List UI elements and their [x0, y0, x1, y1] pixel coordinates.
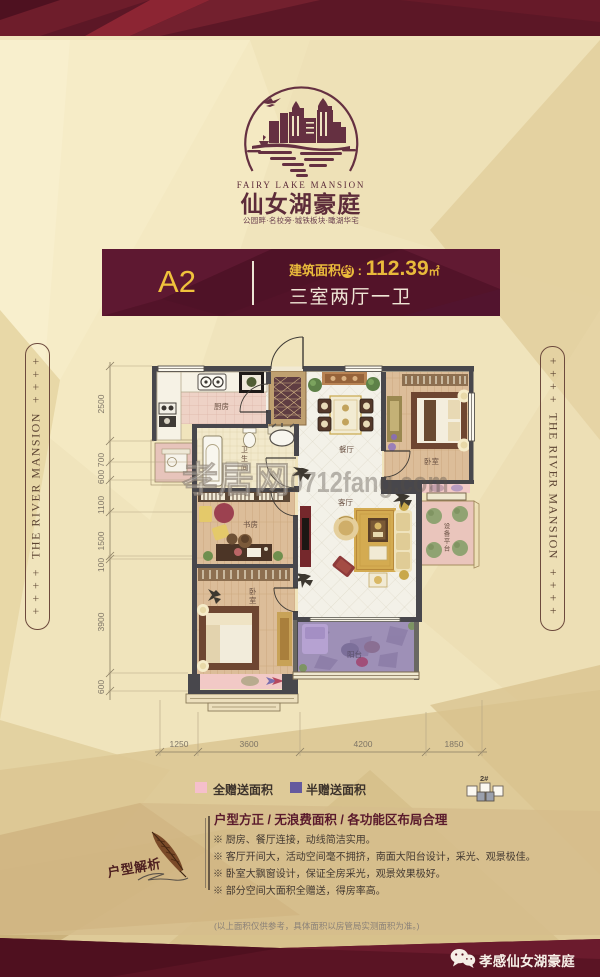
svg-text:FAIRY LAKE MANSION: FAIRY LAKE MANSION: [237, 180, 365, 190]
svg-text:平: 平: [444, 537, 451, 545]
svg-text:3900: 3900: [96, 612, 106, 631]
svg-text:1500: 1500: [96, 531, 106, 550]
svg-text:仙女湖豪庭: 仙女湖豪庭: [241, 191, 362, 217]
svg-text:700: 700: [96, 453, 106, 467]
svg-text:1850: 1850: [445, 739, 464, 749]
svg-text:2500: 2500: [96, 394, 106, 413]
svg-text:厨房: 厨房: [214, 401, 229, 411]
svg-text:100: 100: [96, 558, 106, 572]
svg-text:公园畔·名校旁·城铁板块·瞰湖华宅: 公园畔·名校旁·城铁板块·瞰湖华宅: [243, 215, 359, 225]
svg-text:1100: 1100: [96, 496, 106, 515]
svg-text:书房: 书房: [243, 519, 258, 529]
svg-text:阳台: 阳台: [347, 649, 362, 659]
svg-text:600: 600: [96, 470, 106, 484]
svg-text:设: 设: [444, 521, 451, 530]
svg-text:4200: 4200: [354, 739, 373, 749]
svg-text:600: 600: [96, 680, 106, 694]
svg-text:台: 台: [444, 544, 451, 553]
svg-text:室: 室: [249, 595, 257, 605]
svg-text:3600: 3600: [240, 739, 259, 749]
svg-text:2#: 2#: [480, 774, 489, 783]
svg-text:备: 备: [444, 529, 451, 538]
svg-text:卧: 卧: [249, 587, 257, 596]
svg-text:1250: 1250: [170, 739, 189, 749]
